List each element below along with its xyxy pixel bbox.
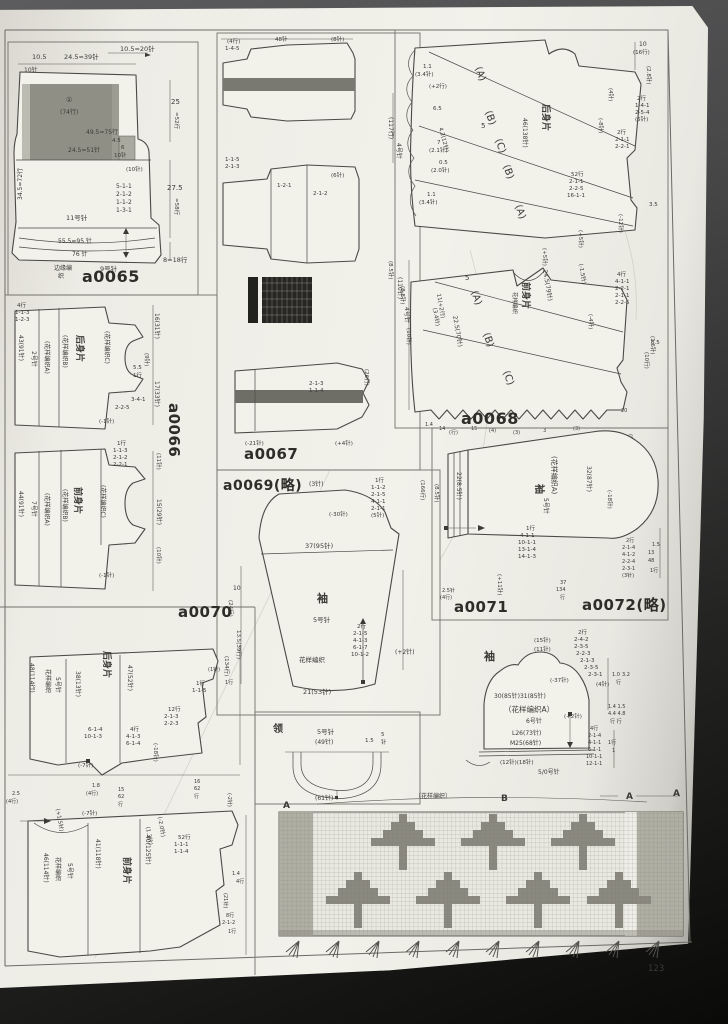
annotation-text: 袖 (484, 649, 495, 663)
block-chart-content: ABA〔花样编织〕 (279, 789, 683, 958)
annotation-text: 花样编织 (54, 857, 62, 881)
annotation-text: 32(87针) (585, 466, 593, 492)
annotation-text: (15针) (534, 636, 551, 644)
annotation-text: 2行 (578, 628, 587, 636)
annotation-text: 1.0 (612, 672, 620, 678)
annotation-text: 领 (273, 722, 283, 735)
annotation-text: 5.5 (133, 365, 142, 371)
annotation-text: 1-4-1 (635, 103, 649, 109)
back-piece-rotated-outline (30, 649, 218, 775)
block-a0065-content: 10.524.5=39针10.5=20针10针①(74行)49.5=75行24.… (8, 42, 198, 295)
annotation-text: 14-1-3 (518, 554, 536, 560)
annotation-text: 5 (465, 274, 469, 282)
annotation-text: 3.2 (622, 672, 630, 678)
annotation-text: (花样编织B) (61, 335, 69, 368)
annotation-text: 行 行 (610, 718, 622, 725)
annotation-text: 4-1-3 (126, 734, 141, 740)
annotation-text: 44(91针) (17, 491, 25, 517)
annotation-text: 4-1-2 (622, 552, 635, 558)
annotation-text: 46(138针) (521, 118, 529, 148)
annotation-text: 62 (118, 794, 124, 800)
chart-grid-overlay (279, 812, 683, 936)
annotation-text: 1行 (117, 439, 126, 447)
annotation-text: 5号针 (66, 863, 74, 879)
annotation-text: 52行 (178, 833, 191, 841)
annotation-text: 12行 (168, 705, 181, 713)
annotation-text: (花样编织A) (550, 456, 559, 495)
annotation-text: (5针) (635, 115, 648, 123)
chart-bottom-strip (279, 930, 683, 936)
annotation-text: 1-1-3 (113, 448, 128, 454)
block-chart: ABA〔花样编织〕 (271, 784, 700, 985)
annotation-text: (12针)(18针) (500, 758, 534, 766)
annotation-text: 1.5 (652, 542, 660, 548)
annotation-text: 10 (233, 585, 241, 592)
scanned-photo: 123 10.524.5=39针10.5=20针10针①(74行)49.5=75… (0, 0, 728, 1024)
annotation-text: 2-1-3 (164, 714, 179, 720)
annotation-text: 38(13针) (74, 671, 82, 697)
annotation-text: (4行) (86, 790, 98, 797)
block-a0066: 后身片(花样编织C)(花样编织B)(花样编织A)2号针43(91针)16(31针… (1, 291, 227, 617)
annotation-text: 2.5针 (442, 587, 455, 594)
annotation-text: 24.5=39针 (64, 52, 99, 61)
annotation-text: 2-3-1 (622, 566, 635, 572)
annotation-text: 2-1-4 (588, 733, 601, 739)
mini-chart-left (248, 277, 258, 323)
annotation-text: (3针) (622, 572, 634, 579)
annotation-text: 1行 (608, 739, 616, 746)
annotation-text: (花样编织C) (99, 485, 107, 518)
annotation-text: M25(68针) (510, 739, 541, 747)
annotation-text: 43(91针) (17, 335, 25, 361)
annotation-text: 17(33针) (153, 381, 161, 407)
annotation-text: 13-1-4 (518, 547, 536, 553)
annotation-text: 1-1-1 (174, 842, 188, 848)
annotation-text: 10 (639, 41, 647, 48)
annotation-text: 1-1-3 (15, 310, 30, 316)
annotation-text: 4-1-1 (588, 740, 601, 746)
annotation-text: (花样编织A) (43, 493, 51, 526)
annotation-text: 10-1-1 (518, 540, 536, 546)
annotation-text: (11针) (534, 645, 551, 653)
annotation-text: 2-1-2 (116, 191, 132, 198)
annotation-text: 2-2-5 (569, 186, 584, 192)
annotation-text: (26行) (363, 369, 371, 386)
annotation-text: (8针) (331, 35, 344, 43)
annotation-text: 3-4-1 (131, 397, 145, 403)
annotation-text: 2-1-5 (371, 492, 386, 498)
annotation-text: 后身片 (74, 335, 86, 362)
annotation-text: 16(31针) (153, 313, 161, 339)
annotation-text: 4.4 4.8 (608, 711, 626, 717)
annotation-text: (花样编织A) (43, 341, 51, 374)
annotation-text: 6-1-4 (126, 741, 141, 747)
annotation-text: 前身片 (72, 487, 84, 514)
annotation-text: 2-2-1 (615, 286, 629, 292)
annotation-text: 后身片 (101, 651, 113, 678)
annotation-text: 37(95针) (305, 541, 333, 550)
annotation-text: （花样编织A） (504, 704, 554, 714)
pattern-label-a0067: a0067 (244, 445, 298, 463)
annotation-text: (49针) (315, 738, 333, 746)
annotation-text: 6-1-4 (88, 727, 103, 733)
annotation-text: 1行 (526, 524, 535, 532)
annotation-text: (2.8针) (645, 66, 653, 85)
annotation-text: 行 (560, 594, 565, 601)
annotation-text: 7 (437, 140, 441, 146)
annotation-text: 1行 (375, 476, 384, 484)
annotation-text: 27.5 (167, 184, 183, 192)
annotation-text: 1.1 (427, 192, 436, 198)
annotation-text: 6-1-1 (588, 747, 601, 753)
annotation-text: 2-5-4 (635, 110, 650, 116)
annotation-text: 2-1-1 (615, 293, 629, 299)
annotations-chart: ABA〔花样编织〕 (283, 789, 680, 811)
annotation-text: 34.5=72行 (16, 168, 24, 200)
section-bracket (317, 797, 647, 804)
annotation-text: 行 (118, 801, 123, 808)
annotation-text: 20 (621, 408, 627, 414)
annotation-text: 4行 (236, 878, 244, 885)
annotation-text: 47(52针) (126, 665, 134, 691)
annotation-text: 48 (648, 558, 654, 564)
block-a0066-content: 后身片(花样编织C)(花样编织B)(花样编织A)2号针43(91针)16(31针… (5, 295, 217, 607)
annotation-text: 行 (616, 679, 621, 686)
annotation-text: 37 (560, 580, 566, 586)
annotation-text: 1-1-5 (192, 688, 207, 694)
block-a0070: 后身片47(52针)38(13针)48(114行)5号针花样编织1行1-1-5(… (0, 603, 269, 977)
annotation-text: 6.5 (433, 106, 442, 112)
annotation-text: (-8针) (597, 118, 605, 133)
annotation-text: (5针) (371, 511, 384, 519)
annotation-text: 25 (171, 98, 180, 106)
annotation-text: 1.5 (365, 738, 374, 744)
annotation-text: 1行 (228, 928, 236, 935)
annotation-text: 2行 (637, 94, 646, 102)
annotation-text: 4-1-1 (615, 279, 629, 285)
annotation-text: 2-3-5 (574, 644, 589, 650)
block-a0065: 10.524.5=39针10.5=20针10针①(74行)49.5=75行24.… (4, 38, 208, 305)
annotation-text: 12-1-1 (586, 761, 602, 767)
stitch-chart-edge-left (22, 84, 30, 160)
front-piece-outline (411, 268, 628, 419)
annotation-text: 〔花样编织〕 (415, 792, 451, 800)
annotation-text: 10.5 (32, 53, 46, 61)
annotation-text: L26(73针) (512, 729, 541, 737)
annotation-text: 花样编织 (44, 669, 52, 693)
annotation-text: (-1针) (99, 571, 114, 579)
annotation-text: 1-1-4 (174, 849, 189, 855)
annotation-text: A (283, 801, 290, 811)
annotation-text: (花样编织B) (61, 489, 69, 522)
annotation-text: (9针) (143, 353, 151, 366)
annotation-text: (2.0针) (431, 166, 450, 174)
annotation-text: (1针) (208, 666, 220, 673)
annotation-text: 30(85针)31(85针) (494, 692, 546, 700)
pattern-label-a0070: a0070 (178, 603, 232, 621)
annotation-text: 6 (121, 145, 125, 151)
annotation-text: (+5针) (541, 248, 549, 266)
annotation-text: 后身片 (540, 104, 552, 131)
annotation-text: (-1.5针) (577, 263, 588, 285)
annotation-text: 1行 (650, 567, 658, 574)
annotation-text: 55.5=95 针 (58, 237, 92, 245)
annotation-text: 5号针 (54, 677, 62, 693)
annotation-text: 10-1-2 (351, 652, 369, 658)
annotation-text: 16-1-1 (567, 193, 585, 199)
annotation-text: 0.5 (439, 160, 448, 166)
block-a0068-content: (A)(B)(C)5(B)(A)后身片46(138针)(-8针)(4针)1.1(… (395, 30, 668, 451)
annotation-text: 2-1-1 (371, 506, 385, 512)
annotation-text: 4-1-1 (371, 499, 385, 505)
annotation-text: 2-1-3 (309, 381, 324, 387)
annotation-text: (-7针) (78, 761, 93, 769)
fringe-tassels (286, 941, 659, 958)
annotation-text: (+2针) (395, 648, 415, 656)
annotation-text: 2-3-5 (584, 665, 599, 671)
annotation-text: 1-4-5 (225, 46, 240, 52)
annotation-text: 4-1-1 (520, 533, 534, 539)
annotation-text: (4针) (607, 88, 615, 101)
annotation-text: 边缘编 (54, 264, 72, 272)
annotation-text: (-37针) (550, 676, 569, 684)
annotation-text: (166行) (419, 480, 427, 500)
annotation-text: (4针) (596, 680, 609, 688)
pattern-label-a0069: a0069(略) (223, 477, 302, 494)
annotation-text: 1-1-4 (309, 388, 324, 394)
annotation-text: 4.5 (112, 138, 121, 144)
annotation-text: 前身片 (520, 282, 532, 309)
annotation-text: (-18针) (152, 743, 160, 762)
annotation-text: 1-1-2 (116, 199, 132, 206)
annotation-text: (21针) (222, 893, 229, 908)
annotation-text: 1.4 1.5 (608, 704, 626, 710)
annotation-text: 1.8 (92, 783, 100, 789)
annotation-text: 3.5 (649, 202, 658, 208)
annotation-text: 袖 (317, 591, 328, 605)
annotation-text: 15 (118, 787, 124, 793)
annotation-text: 2-1-3 (225, 164, 240, 170)
annotation-text: 21(53针) (303, 687, 331, 696)
annotation-text: 2-1-2 (222, 920, 235, 926)
annotation-text: 2行 (626, 537, 634, 544)
annotation-text: 织 (58, 272, 64, 280)
annotation-text: 1-1-5 (225, 157, 240, 163)
annotation-text: 49.5=75行 (86, 128, 118, 136)
block-a0070-content: 后身片47(52针)38(13针)48(114行)5号针花样编织1行1-1-5(… (0, 603, 255, 975)
annotation-text: (+5针) (577, 230, 585, 248)
annotation-text: =52行 (173, 112, 181, 130)
annotation-text: 花样编织 (511, 292, 519, 315)
annotation-text: 16 (194, 779, 200, 785)
annotation-text: 2-1-1 (615, 137, 629, 143)
annotation-text: 46(114针) (42, 853, 50, 883)
annotation-text: (-4针) (587, 314, 595, 329)
annotation-text: 8=18行 (163, 255, 188, 264)
annotation-text: (3.4针) (415, 70, 434, 78)
annotation-text: 2-2-3 (164, 721, 179, 727)
block-a0067-content: (4行)1-4-548针(8针)(117行)4号针1-1-52-1-3(6针)1… (217, 33, 420, 470)
annotation-text: 行 (194, 793, 199, 800)
annotation-text: 5号针 (317, 727, 335, 736)
annotation-text: 5 (381, 732, 385, 738)
annotation-text: 花样编织 (299, 655, 326, 664)
annotation-text: B (501, 794, 508, 804)
annotation-text: 1-3-1 (116, 207, 132, 214)
annotation-text: 2-1-2 (313, 191, 327, 197)
annotation-text: A (673, 789, 680, 799)
annotation-text: (6针) (331, 171, 344, 179)
sleeve-outline (259, 490, 399, 691)
annotation-text: (+11针) (496, 574, 504, 595)
annotation-text: 4行 (617, 270, 626, 278)
annotation-text: 10-1-1 (586, 754, 602, 760)
bell-sleeve-outline (468, 431, 658, 538)
annotation-text: 1.1 (423, 64, 432, 70)
annotation-text: (4行) (6, 798, 18, 805)
annotation-text: ① (66, 96, 72, 104)
annotation-text: 2-1-3 (580, 658, 595, 664)
annotation-text: (2.1针) (429, 146, 448, 154)
annotation-text: 24.5=51针 (68, 146, 100, 154)
annotation-text: 2号针 (30, 351, 38, 367)
annotation-text: (+4针) (335, 439, 353, 447)
annotation-text: (10针) (126, 165, 143, 173)
annotation-text: (4行) (227, 37, 240, 45)
annotation-text: 10.5=20针 (120, 44, 155, 53)
annotation-text: (3.4针) (419, 198, 438, 206)
annotation-text: (花样编织C) (103, 331, 111, 364)
annotation-text: 2行 (357, 622, 366, 630)
annotation-text: (16行) (633, 48, 650, 56)
annotation-text: 4行 (590, 725, 598, 732)
annotation-text: 76 针 (72, 250, 88, 258)
annotation-text: 10针 (114, 151, 127, 159)
annotation-text: 1-2-3 (15, 317, 30, 323)
annotation-text: (4行) (440, 594, 452, 601)
annotation-text: 5 (481, 122, 485, 130)
annotation-text: 1 (612, 748, 615, 754)
annotation-text: 1-2-1 (277, 183, 291, 189)
pattern-label-a0065: a0065 (82, 267, 140, 286)
front-piece-rotated-outline (15, 449, 145, 589)
annotation-text: (10行) (643, 352, 651, 369)
annotation-text: 13 (648, 550, 654, 556)
annotation-text: 针 (381, 738, 387, 746)
pattern-label-a0066: a0066 (165, 403, 183, 457)
annotation-text: (8.5针) (433, 484, 441, 503)
annotation-text: 2-2-5 (615, 300, 630, 306)
annotation-text: 41(118针) (94, 839, 102, 869)
annotation-text: 1行 (196, 679, 205, 687)
annotation-text: 1行 (133, 371, 142, 379)
annotation-text: 5号针 (542, 498, 550, 514)
annotation-text: (74行) (60, 108, 78, 116)
annotation-text: (3针) (309, 480, 324, 488)
annotation-text: 2-2-1 (615, 144, 629, 150)
annotation-text: (+2针) (564, 712, 582, 720)
annotation-text: 4-1-3 (353, 638, 368, 644)
annotation-text: 22(8.5针) (455, 472, 463, 500)
annotation-text: 5号针 (313, 615, 331, 624)
annotation-text: 6号针 (526, 717, 542, 725)
annotation-text: (10针) (405, 328, 413, 345)
annotation-text: 2行 (617, 128, 626, 136)
annotation-text: 2.5 (12, 791, 20, 797)
annotation-text: 前身片 (121, 857, 133, 884)
annotation-text: 134 (556, 587, 566, 593)
annotation-text: 2-1-2 (113, 455, 127, 461)
annotation-text: 15(29针) (155, 499, 163, 525)
annotation-text: 2-1-4 (622, 545, 635, 551)
annotation-text: 1-1-2 (371, 485, 385, 491)
annotation-text: 2-2-4 (622, 559, 635, 565)
annotation-text: 52行 (571, 170, 584, 178)
annotation-text: (-30针) (329, 510, 348, 518)
annotation-text: 2-4-2 (574, 637, 588, 643)
annotation-text: 6-1-7 (353, 645, 368, 651)
annotation-text: 2-2-5 (115, 405, 130, 411)
annotation-text: 10针 (24, 66, 38, 74)
annotation-text: 袖 (533, 483, 546, 494)
annotation-text: (-7针) (82, 809, 97, 817)
annotation-text: 2-2-1 (113, 462, 127, 468)
annotation-text: 1.4 (232, 871, 240, 877)
front-piece-rotated-outline (28, 811, 238, 957)
annotation-text: 4行 (17, 301, 26, 309)
piece2-outline (223, 165, 359, 263)
annotation-text: 4行 (130, 725, 139, 733)
piece3-dark-band (235, 390, 363, 403)
annotation-text: 48针 (275, 35, 288, 43)
annotation-text: (10针) (155, 547, 163, 564)
annotation-text: =58行 (173, 198, 181, 216)
stitch-chart-edge-right (112, 84, 119, 160)
annotation-text: (-18针) (606, 490, 614, 509)
annotation-text: 2-1-1 (569, 179, 583, 185)
block-a0071: 22(8.5针)(8.5针)(花样编织A)袖5号针32(87针)(-18针)1行… (428, 424, 678, 630)
block-a0068: (A)(B)(C)5(B)(A)后身片46(138针)(-8针)(4针)1.1(… (391, 26, 678, 448)
annotation-text: (+2行) (429, 82, 447, 90)
annotation-text: 62 (194, 786, 200, 792)
annotation-text: 8行 (226, 912, 234, 919)
annotation-text: 2-2-3 (576, 651, 591, 657)
annotation-text: (-2针) (226, 793, 233, 807)
block-sleeve2-content: 袖(15针)(11针)2行2-4-22-3-52-2-32-1-32-3-52-… (466, 628, 680, 802)
piece1-dark-band (223, 78, 355, 91)
annotation-text: 2-1-5 (353, 631, 368, 637)
annotation-text: (8.8针) (399, 286, 407, 305)
annotation-text: 5/0号针 (538, 768, 560, 776)
block-a0071-content: 22(8.5针)(8.5针)(花样编织A)袖5号针32(87针)(-18针)1行… (432, 428, 668, 620)
annotation-text: 8.5 (651, 340, 660, 346)
annotation-text: (-12针) (617, 214, 625, 233)
annotation-text: 2-3-1 (588, 672, 602, 678)
annotation-text: (-1针) (99, 417, 114, 425)
annotation-text: 7号针 (30, 501, 38, 517)
annotation-text: 48(114行) (28, 663, 36, 693)
annotation-text: 10-1-3 (84, 734, 102, 740)
annotation-text: 5-1-1 (116, 183, 132, 190)
annotation-text: (11针) (155, 453, 163, 470)
pattern-label-a0072: a0072(略) (582, 596, 667, 614)
annotation-text: 11号针 (66, 213, 88, 222)
